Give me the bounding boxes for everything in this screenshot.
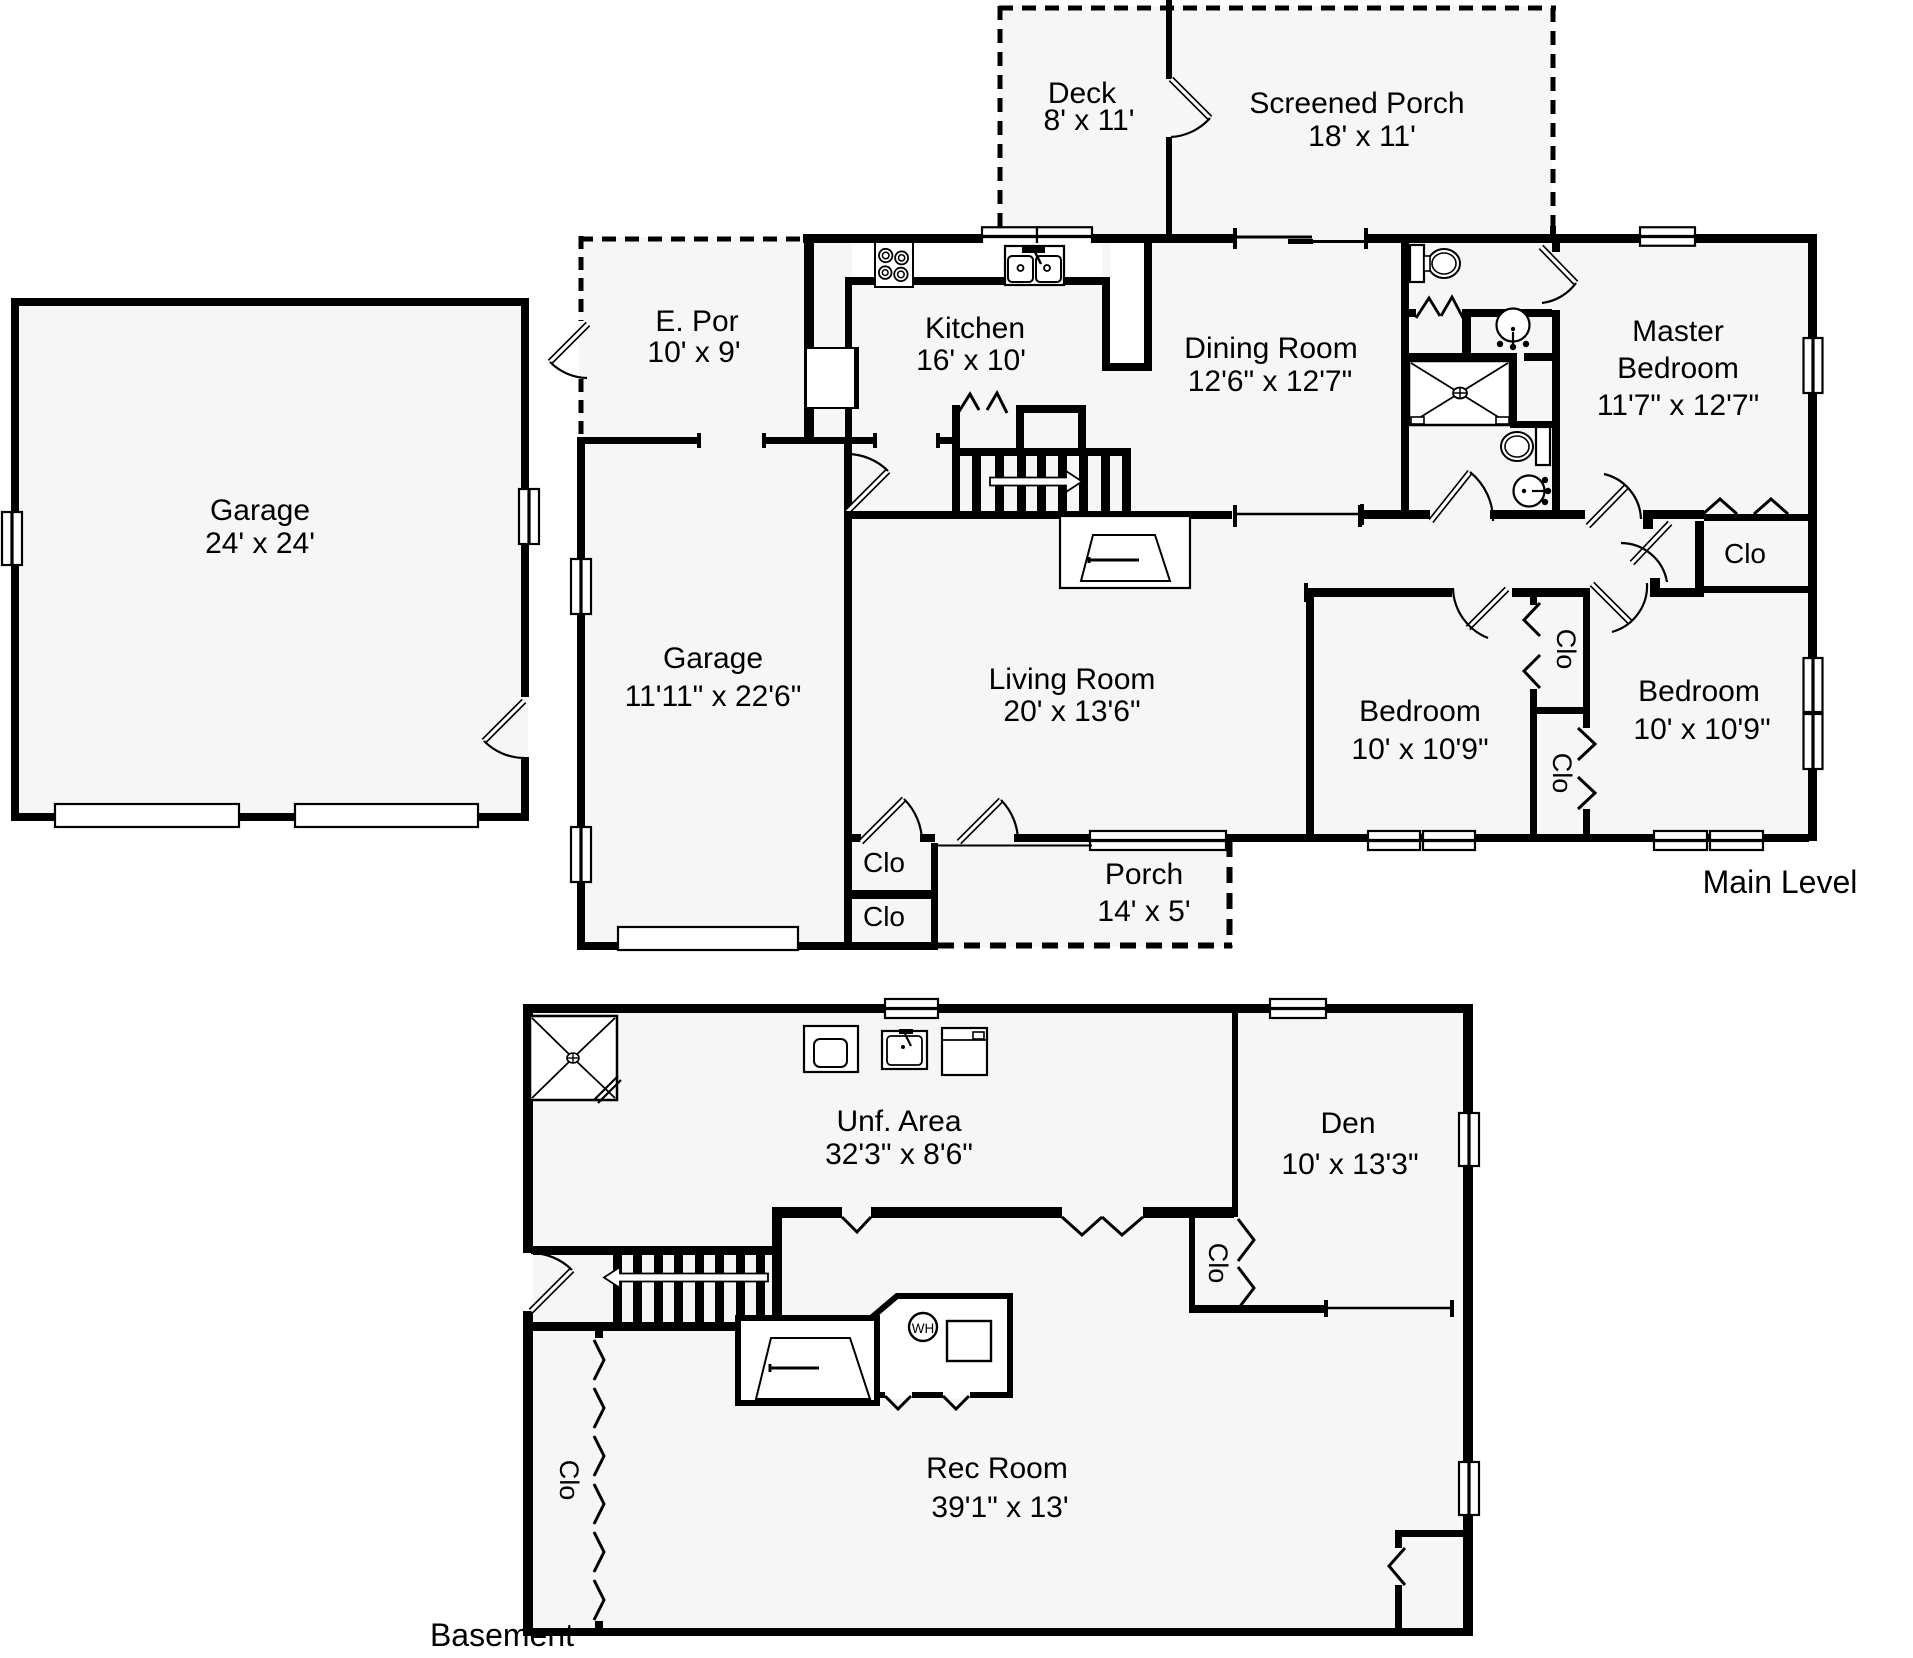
svg-text:Master: Master (1632, 315, 1724, 348)
svg-text:Clo: Clo (863, 901, 905, 932)
svg-text:Porch: Porch (1105, 858, 1183, 891)
svg-text:Rec Room: Rec Room (926, 1452, 1068, 1485)
svg-text:Basement: Basement (430, 1617, 574, 1653)
svg-text:16' x 10': 16' x 10' (916, 344, 1026, 377)
svg-text:10' x 10'9": 10' x 10'9" (1633, 713, 1770, 746)
svg-text:Clo: Clo (1203, 1243, 1233, 1284)
svg-text:Dining Room: Dining Room (1184, 332, 1357, 365)
svg-text:Clo: Clo (863, 847, 905, 878)
svg-text:Main Level: Main Level (1703, 864, 1858, 900)
svg-text:Unf. Area: Unf. Area (836, 1105, 961, 1138)
svg-text:20' x 13'6": 20' x 13'6" (1003, 695, 1140, 728)
svg-text:14' x 5': 14' x 5' (1097, 895, 1190, 928)
svg-text:Bedroom: Bedroom (1638, 675, 1760, 708)
svg-text:39'1" x 13': 39'1" x 13' (931, 1491, 1068, 1524)
svg-text:10' x 10'9": 10' x 10'9" (1351, 733, 1488, 766)
svg-text:Bedroom: Bedroom (1359, 695, 1481, 728)
svg-text:Clo: Clo (1547, 753, 1577, 794)
svg-text:11'7" x 12'7": 11'7" x 12'7" (1597, 389, 1759, 422)
svg-text:Clo: Clo (1551, 629, 1581, 670)
svg-text:Bedroom: Bedroom (1617, 352, 1739, 385)
svg-text:Clo: Clo (554, 1460, 584, 1501)
svg-text:10' x 13'3": 10' x 13'3" (1281, 1148, 1418, 1181)
svg-text:Screened Porch: Screened Porch (1249, 87, 1464, 120)
svg-text:11'11" x 22'6": 11'11" x 22'6" (625, 680, 802, 713)
svg-text:WH: WH (912, 1321, 935, 1336)
svg-text:Garage: Garage (663, 642, 763, 675)
svg-text:Kitchen: Kitchen (925, 312, 1025, 345)
svg-text:24' x 24': 24' x 24' (205, 527, 315, 560)
svg-text:10' x 9': 10' x 9' (647, 336, 740, 369)
svg-text:Living Room: Living Room (989, 663, 1156, 696)
svg-text:E. Por: E. Por (655, 305, 738, 338)
svg-text:32'3" x 8'6": 32'3" x 8'6" (825, 1138, 973, 1171)
svg-text:12'6" x 12'7": 12'6" x 12'7" (1188, 365, 1353, 398)
svg-text:Garage: Garage (210, 494, 310, 527)
svg-text:18' x 11': 18' x 11' (1308, 120, 1416, 153)
svg-text:Den: Den (1320, 1107, 1375, 1140)
svg-text:Clo: Clo (1724, 538, 1766, 569)
svg-text:8' x 11': 8' x 11' (1044, 104, 1135, 137)
